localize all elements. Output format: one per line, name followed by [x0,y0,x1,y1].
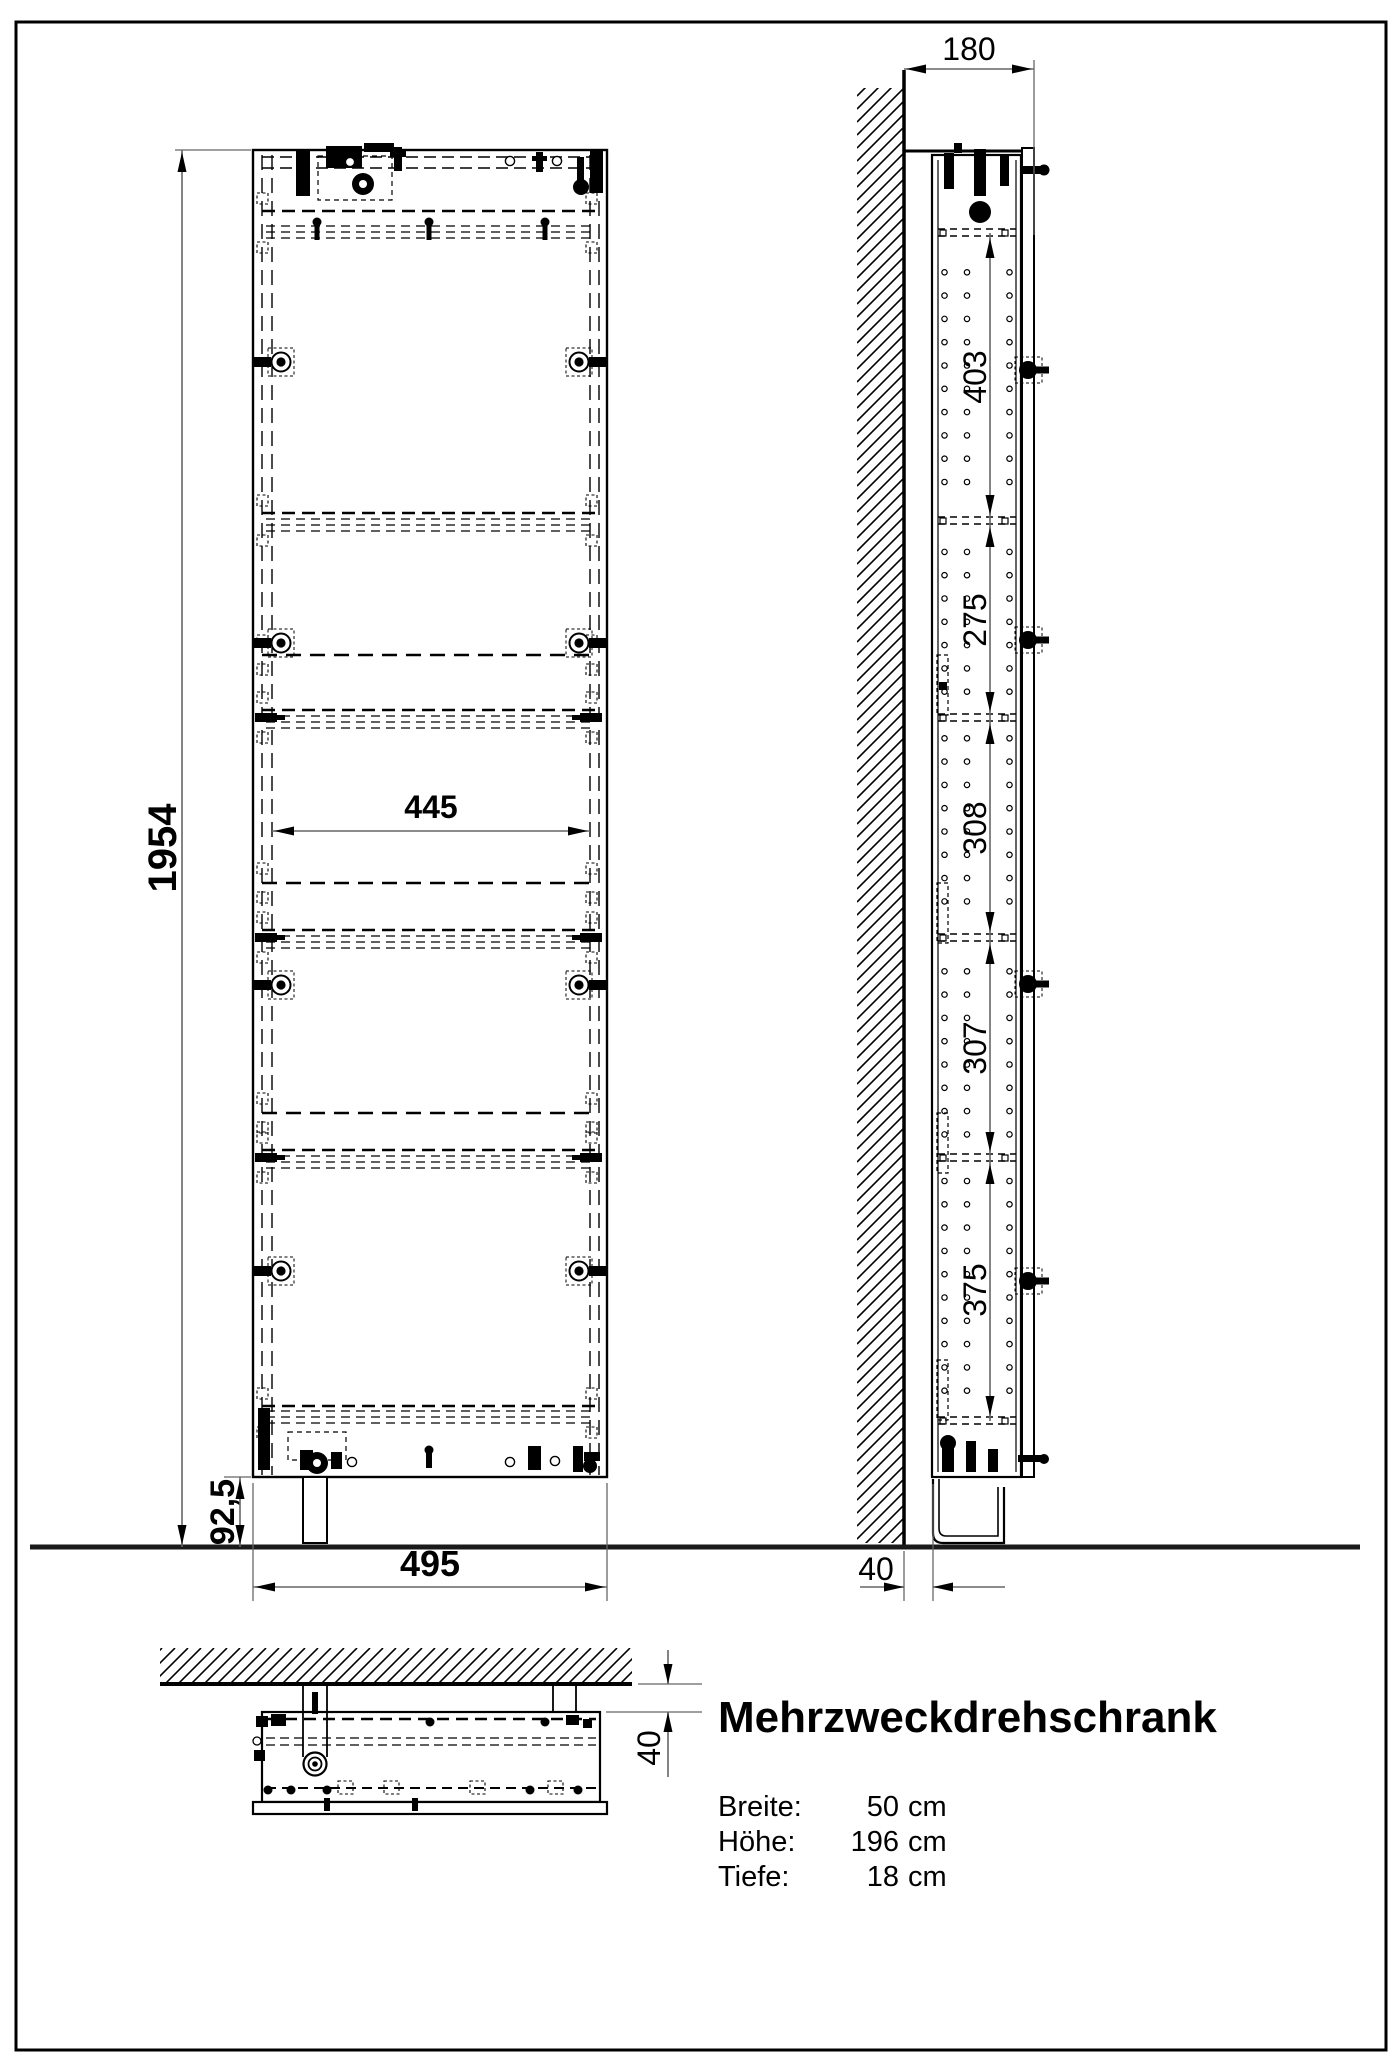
dim-shelf-spacing-4: 307 [957,1021,993,1074]
dim-shelf-spacing-3: 308 [957,801,993,854]
front-view [253,143,607,1543]
dim-shelf-spacing-2: 275 [957,593,993,646]
dim-depth: 180 [942,31,995,67]
top-view [126,1648,669,1814]
dim-floor-gap: 40 [858,1551,894,1587]
cabinet-technical-drawing: 1954 92,5 495 445 180 40 40 403 275 308 … [0,0,1394,2059]
dim-shelf-spacing-5: 375 [957,1263,993,1316]
side-foot-bracket [933,1479,1004,1543]
dim-wall-gap-top: 40 [631,1730,667,1766]
dim-width: 495 [400,1543,460,1584]
spec-unit-breite: cm [908,1791,947,1823]
product-title: Mehrzweckdrehschrank [718,1693,1217,1742]
wall-bracket-right [553,1686,576,1711]
top-base-plate [253,1802,607,1814]
spec-unit-tiefe: cm [908,1861,947,1893]
front-pivot-foot [303,1477,327,1543]
spec-unit-hoehe: cm [908,1826,947,1858]
spec-value-hoehe: 196 [851,1826,899,1858]
side-view [857,49,1050,1591]
page-frame [16,22,1386,2050]
spec-value-breite: 50 [867,1791,899,1823]
wall-hatching-top [126,1648,669,1684]
dim-base-height: 92,5 [204,1479,242,1545]
dim-total-height: 1954 [141,803,185,893]
spec-label-breite: Breite: [718,1791,802,1823]
spec-value-tiefe: 18 [867,1861,899,1893]
dim-inner-width: 445 [404,789,457,825]
dim-shelf-spacing-1: 403 [957,350,993,403]
wall-hatching-side [857,49,904,1591]
spec-label-hoehe: Höhe: [718,1826,795,1858]
side-foot-bracket-inner [939,1479,998,1536]
spec-label-tiefe: Tiefe: [718,1861,789,1893]
title-block: Mehrzweckdrehschrank Breite: 50 cm Höhe:… [718,1693,1217,1893]
technical-drawing-page: 1954 92,5 495 445 180 40 40 403 275 308 … [0,0,1394,2059]
